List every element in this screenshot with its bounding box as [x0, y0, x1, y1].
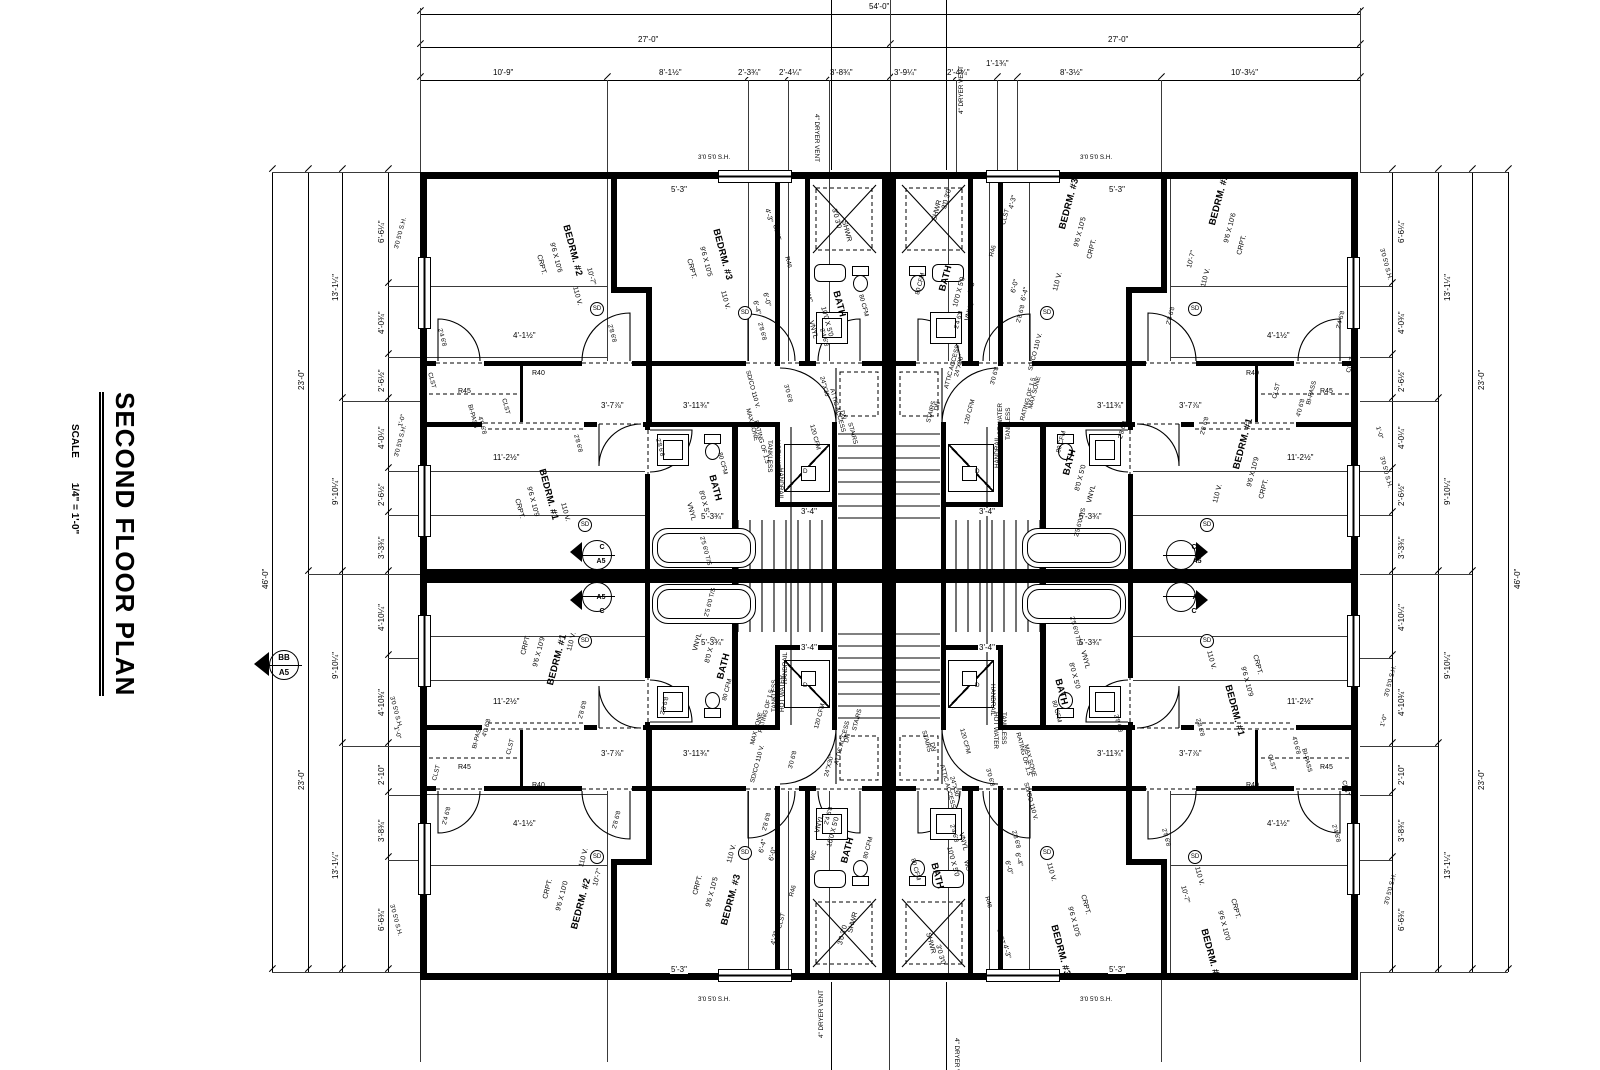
- dim-label: 27'-0": [1107, 36, 1129, 44]
- extension-line: [1360, 972, 1508, 973]
- interior-dim: 5'-3¾": [700, 513, 725, 521]
- wc-label: WC: [962, 860, 971, 872]
- tankless-note: HOT WATER: [998, 403, 1004, 440]
- insulation-note: R40: [532, 782, 545, 789]
- extension-line: [272, 972, 420, 973]
- extension-line: [272, 172, 420, 173]
- dryer-vent-line: [831, 0, 832, 170]
- wall-offset-dim: 1'-0": [1380, 714, 1389, 728]
- section-marker-c: C A5: [1166, 540, 1196, 570]
- dim-line: [272, 172, 273, 972]
- dim-label: 23'-0": [1478, 369, 1486, 391]
- scale-value: 1/4" = 1'-0": [69, 483, 80, 535]
- window-label: 3'0 5'0 S.H.: [1384, 873, 1398, 906]
- dim-label: 6'-6¾": [378, 907, 386, 932]
- extension-line: [788, 80, 789, 172]
- section-arrow-c: [570, 542, 582, 562]
- extension-line: [1017, 80, 1018, 172]
- extension-line: [889, 976, 890, 1070]
- interior-dim: 3'-7⅞": [600, 402, 625, 410]
- window-label: 3'0 5'0 S.H.: [1378, 248, 1392, 281]
- dim-line: [1508, 172, 1509, 972]
- dim-label: 10'-3½": [1230, 69, 1259, 77]
- extension-line: [420, 8, 421, 172]
- dryer-box-label: D: [803, 683, 808, 689]
- dryer-vent-label: 4" DRYER VENT: [959, 66, 965, 114]
- dim-label: 9'-10¼": [1444, 477, 1452, 506]
- interior-dim: 3'-7⅞": [1178, 402, 1203, 410]
- dim-label: 4'-0¾": [1398, 310, 1406, 335]
- vanity-sink: [1089, 686, 1121, 718]
- extension-line: [1360, 286, 1392, 287]
- handrail-label: HANDRAIL: [995, 436, 1001, 468]
- smoke-detector-symbol: SD: [738, 846, 752, 860]
- dim-label: 13'-1¼": [332, 273, 340, 302]
- scale-note: SCALE 1/4" = 1'-0": [66, 424, 80, 644]
- stair-direction: DN: [838, 410, 846, 420]
- extension-line: [1360, 8, 1361, 172]
- smoke-detector-symbol: SD: [578, 518, 592, 532]
- interior-dim: 3'-11¾": [1096, 402, 1124, 410]
- wall-offset-dim: 1'-0": [1374, 426, 1383, 440]
- door-arc: [1298, 319, 1340, 361]
- section-marker-label: BB: [270, 653, 298, 662]
- dim-label: 9'-10¼": [332, 477, 340, 506]
- extension-line: [388, 658, 420, 659]
- window-label: 3'0 5'0 S.H.: [394, 217, 408, 250]
- extension-line: [1360, 972, 1361, 1062]
- door-arc: [1148, 791, 1196, 839]
- section-marker-label: C: [1185, 608, 1203, 615]
- section-marker-label: C: [1185, 544, 1203, 551]
- extension-line: [997, 80, 998, 172]
- interior-dim: 4'-1½": [512, 332, 537, 340]
- stair-treads: [896, 434, 940, 518]
- linework-overlay: [889, 576, 1358, 980]
- door-arc: [1137, 424, 1179, 466]
- extension-line: [1161, 972, 1162, 1062]
- insulation-note: R45: [1320, 388, 1333, 395]
- smoke-detector-symbol: SD: [1040, 306, 1054, 320]
- window-label: 3'0 5'0 S.H.: [394, 425, 408, 458]
- window-label: 3'0 5'0 S.H.: [1080, 997, 1112, 1003]
- scale-label: SCALE: [69, 424, 80, 458]
- bathtub: [652, 584, 756, 624]
- section-marker-c: C A5: [1166, 582, 1196, 612]
- dim-label: 4'-0¼": [378, 425, 386, 450]
- interior-dim: 3'-11¾": [682, 750, 710, 758]
- bipass-doors-dashed: [484, 423, 586, 429]
- dim-label: 3'-8¾": [378, 818, 386, 843]
- dim-line: [308, 172, 309, 972]
- dim-label: 13'-1¼": [332, 851, 340, 880]
- door-arc: [599, 424, 641, 466]
- dim-line: [388, 172, 389, 972]
- section-marker-bb: BB A5: [269, 650, 299, 680]
- window-label: 3'0 5'0 S.H.: [1378, 456, 1392, 489]
- dim-label: 3'-8¾": [1398, 818, 1406, 843]
- extension-line: [388, 795, 420, 796]
- extension-line: [890, 0, 891, 172]
- dim-label: 4'-10¼": [378, 603, 386, 632]
- dim-label: 6'-6¼": [378, 219, 386, 244]
- window-label: 3'0 5'0 S.H.: [1080, 155, 1112, 161]
- dryer-vent-line: [946, 982, 947, 1070]
- dim-label: 6'-6¼": [1398, 219, 1406, 244]
- dim-label: 2'-10": [1398, 764, 1406, 786]
- sheet-ref-label: A5: [1187, 594, 1207, 603]
- insulation-note: R45: [458, 764, 471, 771]
- interior-dim: 4'-1½": [1266, 332, 1291, 340]
- dim-label: 46'-0": [262, 568, 270, 590]
- extension-line: [308, 574, 420, 575]
- interior-dim: 11'-2½": [1286, 454, 1314, 462]
- dim-label: 27'-0": [637, 36, 659, 44]
- extension-line: [1360, 658, 1392, 659]
- vanity-sink: [1089, 434, 1121, 466]
- dim-label: 23'-0": [1478, 769, 1486, 791]
- lavatory-sink: [814, 264, 846, 282]
- extension-line: [956, 80, 957, 172]
- extension-line: [1360, 172, 1508, 173]
- dim-label: 54'-0": [868, 3, 890, 11]
- stair-treads: [896, 634, 940, 718]
- dryer-vent-label: 4" DRYER VENT: [953, 1038, 959, 1070]
- smoke-detector-symbol: SD: [1200, 634, 1214, 648]
- dim-line: [1438, 172, 1439, 972]
- smoke-detector-symbol: SD: [738, 306, 752, 320]
- window-label: 3'0 5'0 S.H.: [388, 696, 402, 729]
- toilet: [704, 692, 721, 718]
- insulation-note: R40: [1246, 370, 1259, 377]
- tankless-note: HOT WATER: [992, 712, 998, 749]
- dim-label: 3'-3¾": [378, 535, 386, 560]
- toilet: [852, 860, 869, 886]
- dryer-box-label: D: [803, 469, 808, 475]
- interior-dim: 5'-3": [670, 966, 688, 974]
- interior-dim: 3'-4": [800, 508, 818, 516]
- dim-label: 10'-9": [492, 69, 514, 77]
- stair-treads: [838, 634, 882, 718]
- sheet-title-block: SECOND FLOOR PLAN: [94, 392, 140, 748]
- window-label: 3'0 5'0 S.H.: [698, 155, 730, 161]
- extension-line: [607, 80, 608, 172]
- dryer-vent-line: [946, 0, 947, 170]
- extension-line: [1161, 80, 1162, 172]
- smoke-detector-symbol: SD: [578, 634, 592, 648]
- stair-treads: [838, 434, 882, 518]
- tankless-note: TANKLESS: [1000, 712, 1006, 744]
- extension-line: [607, 972, 608, 1062]
- linework-overlay: [420, 576, 889, 980]
- extension-line: [388, 357, 420, 358]
- dryer-box-label: D: [975, 683, 980, 689]
- interior-dim: 4'-1½": [512, 820, 537, 828]
- dim-label: 3'-9¼": [893, 69, 918, 77]
- insulation-note: R40: [532, 370, 545, 377]
- window-label: 3'0 5'0 S.H.: [698, 997, 730, 1003]
- extension-line: [420, 972, 421, 1062]
- interior-dim: 3'-4": [978, 508, 996, 516]
- interior-dim: 3'-4": [978, 644, 996, 652]
- interior-dim: 3'-4": [800, 644, 818, 652]
- dim-label: 2'-6½": [378, 368, 386, 393]
- interior-dim: 3'-11¾": [1096, 750, 1124, 758]
- tankless-note: TANKLESS: [1006, 408, 1012, 440]
- dim-label: 3'-8¾": [829, 69, 854, 77]
- extension-line: [388, 286, 420, 287]
- section-marker-label: C: [593, 544, 611, 551]
- dim-label: 4'-0¼": [1398, 425, 1406, 450]
- linework-overlay: [420, 172, 889, 576]
- page-title: SECOND FLOOR PLAN: [99, 392, 140, 696]
- dim-label: 46'-0": [1514, 568, 1522, 590]
- interior-dim: 3'-7⅞": [1178, 750, 1203, 758]
- extension-line: [829, 80, 830, 172]
- dim-label: 23'-0": [298, 369, 306, 391]
- dim-label: 4'-10¼": [1398, 603, 1406, 632]
- extension-line: [1360, 795, 1392, 796]
- dim-label: 2'-10": [378, 764, 386, 786]
- insulation-note: R40: [1246, 782, 1259, 789]
- extension-line: [1360, 357, 1392, 358]
- smoke-detector-symbol: SD: [1188, 850, 1202, 864]
- dim-label: 23'-0": [298, 769, 306, 791]
- interior-dim: 3'-7⅞": [600, 750, 625, 758]
- quadrant-bl: C A5 BEDRM. #2 9'6 X 10'0 CRPT. 10'-7" 1…: [420, 576, 889, 980]
- smoke-detector-symbol: SD: [1188, 302, 1202, 316]
- sheet-ref-label: A5: [1187, 558, 1207, 567]
- dim-label: 13'-1¼": [1444, 851, 1452, 880]
- dim-label: 2'-6½": [1398, 368, 1406, 393]
- section-marker-c: C A5: [582, 582, 612, 612]
- quadrant-tl: C A5 BEDRM. #2 9'6 X 10'6 CRPT. 10'-7" 1…: [420, 172, 889, 576]
- dim-label: 6'-6¾": [1398, 907, 1406, 932]
- dim-label: 2'-3¾": [737, 69, 762, 77]
- section-arrow-bb: [254, 652, 269, 676]
- dim-line: [1472, 172, 1473, 972]
- sheet-ref-label: A5: [270, 668, 298, 677]
- smoke-detector-symbol: SD: [1200, 518, 1214, 532]
- section-arrow-c: [570, 590, 582, 610]
- interior-dim: 5'-3¾": [700, 639, 725, 647]
- interior-dim: 11'-2½": [492, 698, 520, 706]
- interior-dim: 5'-3": [670, 186, 688, 194]
- interior-dim: 3'-11¾": [682, 402, 710, 410]
- extension-line: [1360, 515, 1392, 516]
- dim-label: 4'-0¾": [378, 310, 386, 335]
- attic-access-dashed: [840, 372, 878, 416]
- extension-line: [748, 80, 749, 172]
- shower-x: [813, 185, 876, 253]
- door-arc: [582, 313, 630, 361]
- interior-dim: 5'-3": [1108, 966, 1126, 974]
- section-marker-c: C A5: [582, 540, 612, 570]
- wall-offset-dim: 1'-0": [392, 726, 401, 740]
- extension-line: [388, 515, 420, 516]
- sheet-ref-label: A5: [591, 558, 611, 567]
- handrail-label: HANDRAIL: [777, 468, 783, 500]
- extension-line: [342, 401, 420, 402]
- dim-label: 3'-3¾": [1398, 535, 1406, 560]
- extension-line: [1360, 860, 1392, 861]
- dim-label: 13'-1¼": [1444, 273, 1452, 302]
- dryer-box-label: D: [975, 469, 980, 475]
- extension-line: [388, 860, 420, 861]
- sheet-ref-label: A5: [591, 594, 611, 603]
- dim-label: 2'-4¼": [778, 69, 803, 77]
- door-arc: [983, 314, 1030, 361]
- extension-line: [388, 471, 420, 472]
- extension-line: [342, 746, 420, 747]
- door-arc: [1137, 686, 1179, 728]
- handrail-label: HANDRAIL: [989, 684, 995, 716]
- interior-dim: 4'-1½": [1266, 820, 1291, 828]
- dryer-vent-label: 4" DRYER VENT: [813, 114, 819, 162]
- insulation-note: R45: [458, 388, 471, 395]
- smoke-detector-symbol: SD: [590, 302, 604, 316]
- dim-label: 2'-6½": [1398, 482, 1406, 507]
- door-arc: [983, 791, 1030, 838]
- dryer-vent-label: 4" DRYER VENT: [819, 990, 825, 1038]
- dim-label: 1'-1¾": [985, 60, 1010, 68]
- quadrant-br: C A5 BEDRM. #2 9'6 X 10'0 CRPT. 10'-7" 1…: [889, 576, 1358, 980]
- extension-line: [1360, 574, 1472, 575]
- floor-plan-sheet: SECOND FLOOR PLAN SCALE 1/4" = 1'-0" BB …: [0, 0, 1600, 1070]
- dim-label: 8'-3½": [1059, 69, 1084, 77]
- door-arc: [582, 791, 630, 839]
- dim-line: [342, 172, 343, 972]
- bipass-doors-dashed: [484, 723, 586, 729]
- interior-dim: 5'-3": [1108, 186, 1126, 194]
- toilet: [852, 266, 869, 292]
- dim-label: 9'-10¼": [332, 651, 340, 680]
- door-arc: [748, 314, 795, 361]
- dim-line: [1392, 172, 1393, 972]
- dim-label: 4'-10¾": [1398, 688, 1406, 717]
- dim-label: 9'-10¼": [1444, 651, 1452, 680]
- dryer-vent-line: [831, 982, 832, 1070]
- section-marker-label: C: [593, 608, 611, 615]
- interior-dim: 11'-2½": [1286, 698, 1314, 706]
- interior-dim: 11'-2½": [492, 454, 520, 462]
- door-arc: [599, 686, 641, 728]
- dim-label: 2'-6½": [378, 482, 386, 507]
- insulation-note: R45: [1320, 764, 1333, 771]
- handrail-label: HANDRAIL: [783, 652, 789, 684]
- extension-line: [1360, 746, 1438, 747]
- shower-x: [902, 899, 965, 967]
- dim-label: 8'-1½": [658, 69, 683, 77]
- lavatory-sink: [814, 870, 846, 888]
- smoke-detector-symbol: SD: [590, 850, 604, 864]
- dim-label: 4'-10¾": [378, 688, 386, 717]
- wc-label: WC: [804, 292, 813, 304]
- quadrant-tr: C A5 BEDRM. #2 9'6 X 10'6 CRPT. 10'-7" 1…: [889, 172, 1358, 576]
- smoke-detector-symbol: SD: [1040, 846, 1054, 860]
- window-label: 3'0 5'0 S.H.: [388, 904, 402, 937]
- extension-line: [1360, 401, 1438, 402]
